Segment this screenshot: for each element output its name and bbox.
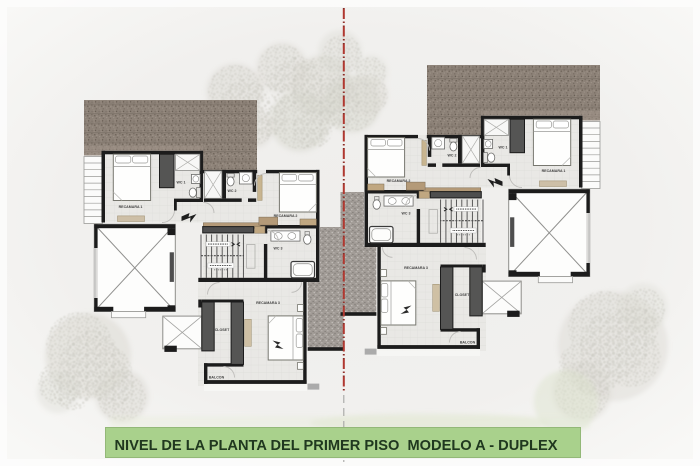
svg-text:RECAMARA 3: RECAMARA 3 [256,301,280,305]
svg-text:CLOSET: CLOSET [215,328,230,332]
svg-text:NIVEL DE LA PLANTA DEL PRIMER: NIVEL DE LA PLANTA DEL PRIMER PISO MODEL… [115,437,558,454]
svg-text:WC 3: WC 3 [402,212,411,216]
svg-text:WC 2: WC 2 [228,189,237,193]
svg-text:RECAMARA 3: RECAMARA 3 [404,266,428,270]
svg-text:RECAMARA 1: RECAMARA 1 [119,205,143,209]
svg-text:BALCON: BALCON [460,341,476,345]
svg-text:WC 1: WC 1 [177,180,186,184]
svg-text:RECAMARA 1: RECAMARA 1 [542,169,566,173]
svg-text:RECAMARA 2: RECAMARA 2 [387,179,411,183]
svg-text:BALCON: BALCON [209,376,225,380]
svg-text:WC 2: WC 2 [448,154,457,158]
svg-text:WC 3: WC 3 [274,247,283,251]
svg-text:RECAMARA 2: RECAMARA 2 [274,214,298,218]
svg-text:CLOSET: CLOSET [455,293,470,297]
svg-text:WC 1: WC 1 [499,145,508,149]
